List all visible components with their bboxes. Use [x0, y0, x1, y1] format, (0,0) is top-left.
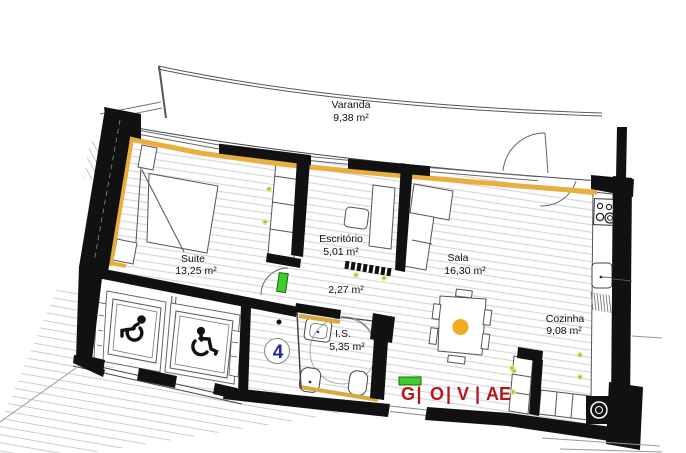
svg-text:V: V	[457, 384, 469, 404]
svg-text:|: |	[475, 384, 480, 404]
svg-text:9,38 m²: 9,38 m²	[333, 112, 369, 124]
svg-text:16,30 m²: 16,30 m²	[444, 265, 486, 277]
svg-text:5,01 m²: 5,01 m²	[323, 246, 359, 258]
svg-text:Escritório: Escritório	[319, 233, 363, 245]
svg-text:Cozinha: Cozinha	[546, 313, 585, 325]
svg-text:2,27 m²: 2,27 m²	[328, 284, 364, 296]
svg-text:I.S.: I.S.	[335, 328, 351, 340]
svg-text:13,25 m²: 13,25 m²	[175, 265, 217, 277]
svg-text:|: |	[446, 384, 451, 404]
svg-text:4: 4	[273, 342, 284, 363]
svg-text:9,08 m²: 9,08 m²	[546, 325, 582, 337]
svg-text:G: G	[401, 384, 415, 404]
svg-text:O: O	[430, 384, 444, 404]
svg-text:AE: AE	[486, 384, 511, 404]
svg-text:Suite: Suite	[181, 253, 205, 265]
svg-text:|: |	[417, 384, 422, 404]
svg-text:Varanda: Varanda	[332, 99, 371, 111]
svg-text:Sala: Sala	[447, 252, 468, 264]
svg-text:5,35 m²: 5,35 m²	[329, 341, 365, 353]
